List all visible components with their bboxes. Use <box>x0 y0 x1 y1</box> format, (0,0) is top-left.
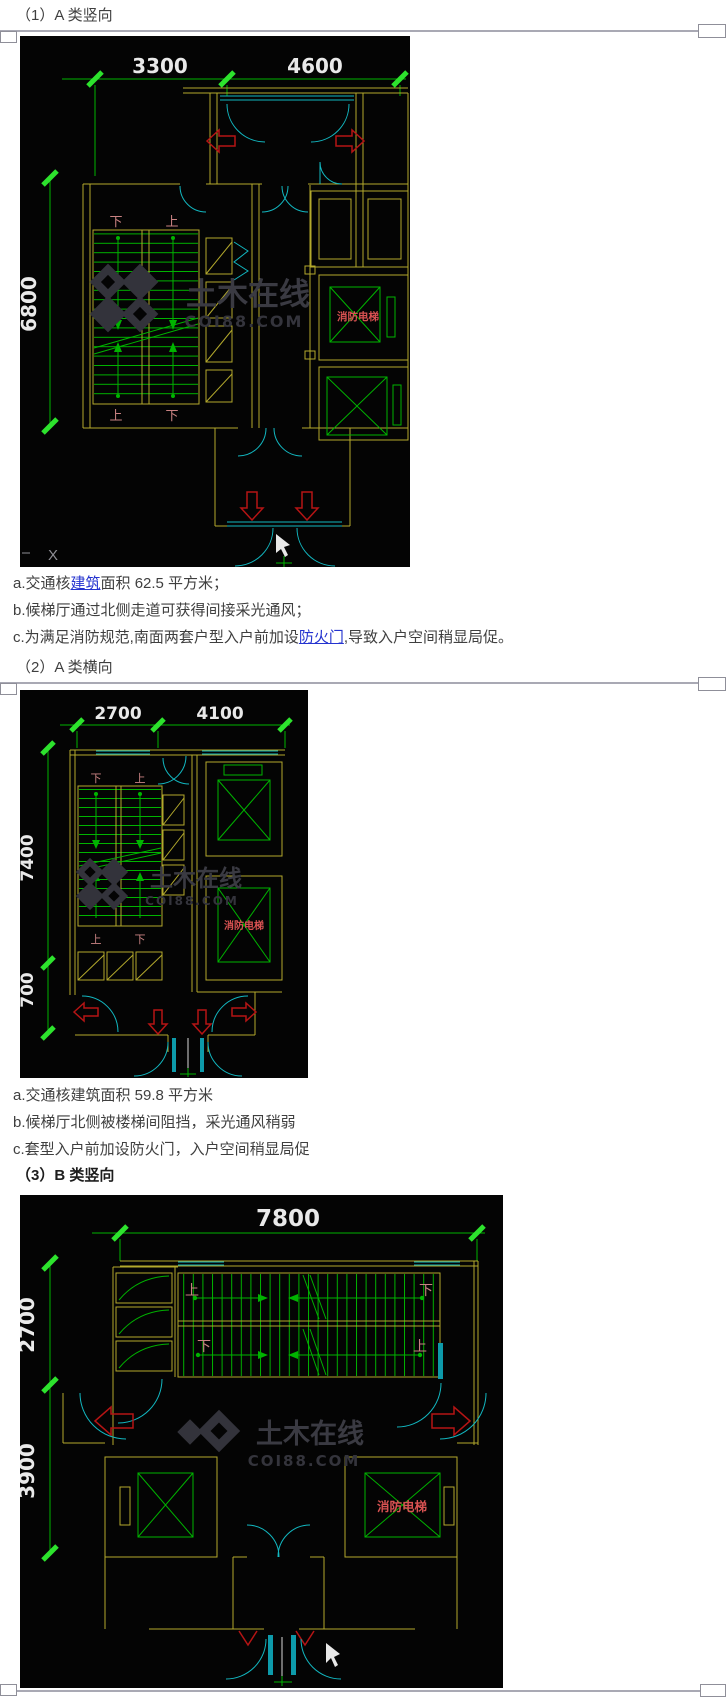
stairwell: 上 下 下 上 <box>178 1273 440 1377</box>
note-text: a.交通核 <box>13 575 71 592</box>
stair-label: 上 <box>135 772 146 785</box>
separator-line <box>0 1690 726 1692</box>
fire-elevator-label: 消防电梯 <box>224 919 264 932</box>
floor-plan-a-horizontal[interactable]: 2700 4100 7400 700 <box>20 690 308 1078</box>
note-text: c.为满足消防规范,南面两套户型入户前加设 <box>13 629 299 646</box>
door-leaf <box>438 1343 443 1379</box>
watermark-en: COI88.COM <box>185 312 304 331</box>
stair-label: 下 <box>165 409 178 424</box>
note-b2: b.候梯厅北侧被楼梯间阻挡，采光通风稍弱 <box>13 1113 296 1133</box>
separator-line <box>0 30 726 32</box>
dim-7400: 7400 <box>20 834 38 881</box>
floor-plan-a-vertical[interactable]: 3300 4600 6800 <box>20 36 410 567</box>
link-jianzhu[interactable]: 建筑 <box>71 575 101 592</box>
stair-label: 下 <box>91 772 102 785</box>
watermark-en: COI88.COM <box>145 894 239 908</box>
stair-label: 上 <box>91 933 102 946</box>
note-c2: c.套型入户前加设防火门，入户空间稍显局促 <box>13 1140 310 1160</box>
dim-4100: 4100 <box>196 704 243 724</box>
dim-3900: 3900 <box>20 1443 39 1499</box>
fire-elevator-label: 消防电梯 <box>377 1499 428 1514</box>
fire-elevator-label: 消防电梯 <box>337 310 379 323</box>
watermark-cn: 土木在线 <box>256 1419 364 1450</box>
note-c1: c.为满足消防规范,南面两套户型入户前加设防火门,导致入户空间稍显局促。 <box>13 628 513 648</box>
dim-4600: 4600 <box>287 54 343 78</box>
stair-label: 下 <box>419 1283 433 1299</box>
drag-handle-right <box>698 677 726 691</box>
note-text: ,导致入户空间稍显局促。 <box>344 629 513 646</box>
stair-label: 下 <box>197 1339 211 1355</box>
stair-label: 下 <box>135 933 146 946</box>
heading-b-vertical: （3）B 类竖向 <box>16 1164 114 1185</box>
note-a2: a.交通核建筑面积 59.8 平方米 <box>13 1086 213 1106</box>
note-text: 面积 62.5 平方米； <box>101 575 229 592</box>
stair-label: 上 <box>109 409 122 424</box>
stair-label: 上 <box>185 1283 199 1299</box>
watermark-cn: 土木在线 <box>186 277 310 313</box>
link-fanghuomen[interactable]: 防火门 <box>299 629 344 646</box>
dim-3300: 3300 <box>132 54 188 78</box>
drag-handle-left <box>0 683 17 695</box>
drag-handle-right <box>698 24 726 38</box>
dim-700: 700 <box>20 972 38 1008</box>
dim-2700: 2700 <box>94 704 141 724</box>
separator-line <box>0 682 726 684</box>
floor-plan-b-vertical[interactable]: 7800 2700 3900 <box>20 1195 503 1688</box>
note-b1: b.候梯厅通过北侧走道可获得间接采光通风； <box>13 601 311 621</box>
watermark-cn: 土木在线 <box>150 865 242 892</box>
heading-a-vertical: （1）A 类竖向 <box>16 4 113 25</box>
note-a1: a.交通核建筑面积 62.5 平方米； <box>13 574 228 594</box>
drag-handle-left <box>0 31 17 43</box>
dim-6800: 6800 <box>20 276 41 332</box>
stair-label: 下 <box>109 215 122 230</box>
drag-handle-left <box>0 1684 17 1696</box>
dim-2700: 2700 <box>20 1297 39 1353</box>
drag-handle-right <box>700 1684 726 1697</box>
document-page: （1）A 类竖向 3300 4600 <box>0 0 726 1700</box>
stair-label: 上 <box>165 215 178 230</box>
artifact-x: X <box>48 547 58 564</box>
watermark-en: COI88.COM <box>248 1452 361 1470</box>
heading-a-horizontal: （2）A 类横向 <box>16 656 113 677</box>
stair-label: 上 <box>413 1339 427 1355</box>
dim-7800: 7800 <box>256 1206 320 1232</box>
